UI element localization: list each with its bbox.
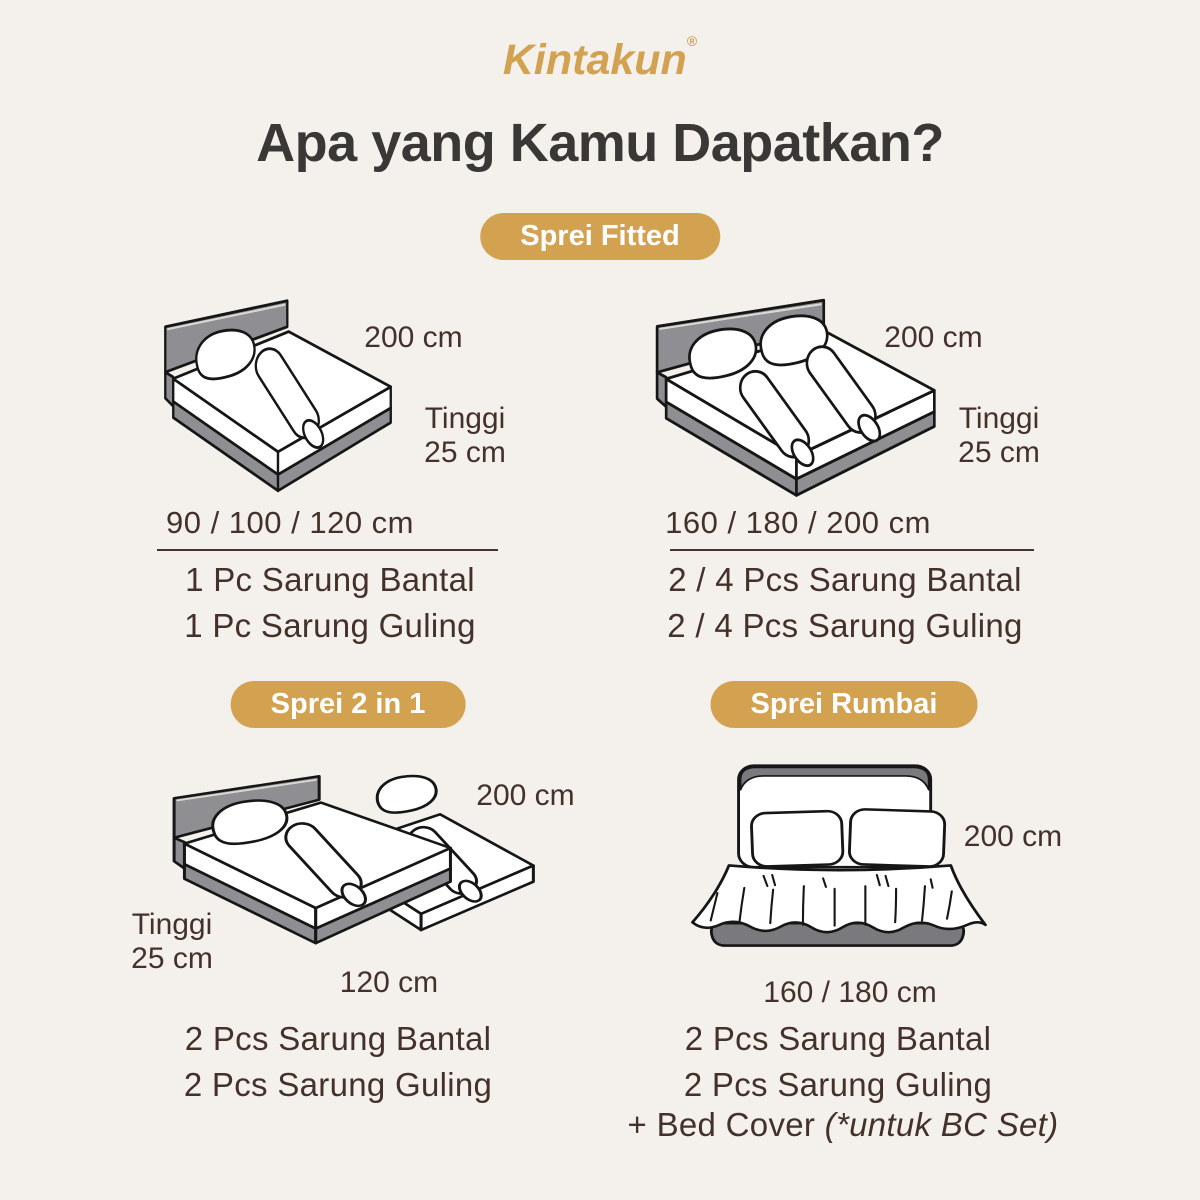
length-label: 200 cm (959, 820, 1067, 854)
height-label-value: 25 cm (424, 436, 506, 469)
bed-cover-prefix: + Bed Cover (628, 1106, 825, 1143)
length-label: 200 cm (473, 779, 578, 813)
height-label-word: Tinggi (425, 402, 506, 435)
included-item: 2 Pcs Sarung Guling (128, 1066, 548, 1104)
bed-cover-italic-note: (*untuk BC Set) (825, 1106, 1059, 1143)
included-item: 2 / 4 Pcs Sarung Bantal (635, 561, 1055, 599)
height-label-word: Tinggi (959, 402, 1040, 435)
included-item: 2 Pcs Sarung Bantal (128, 1020, 548, 1058)
kintakun-infographic: Kintakun® Apa yang Kamu Dapatkan? Sprei … (0, 0, 1200, 1200)
length-label: 200 cm (361, 321, 466, 355)
height-label-word: Tinggi (132, 908, 213, 941)
included-item: 1 Pc Sarung Bantal (120, 561, 540, 599)
pillow-left (751, 811, 843, 867)
height-label: Tinggi 25 cm (419, 402, 511, 470)
bed-skirt (692, 865, 985, 932)
badge-sprei-2in1: Sprei 2 in 1 (231, 681, 466, 728)
included-item: 2 Pcs Sarung Bantal (628, 1020, 1048, 1058)
divider (670, 549, 1034, 551)
badge-sprei-fitted: Sprei Fitted (480, 213, 720, 260)
bed-cover-note: + Bed Cover (*untuk BC Set) (613, 1106, 1073, 1144)
divider (157, 549, 498, 551)
length-label: 200 cm (881, 321, 986, 355)
height-label: Tinggi 25 cm (126, 908, 218, 976)
brand-logo-text: Kintakun (503, 36, 687, 84)
height-label-value: 25 cm (131, 942, 213, 975)
widths-label: 90 / 100 / 120 cm (80, 505, 500, 541)
page-title: Apa yang Kamu Dapatkan? (0, 112, 1200, 174)
badge-sprei-rumbai: Sprei Rumbai (711, 681, 978, 728)
height-label-value: 25 cm (958, 436, 1040, 469)
included-item: 2 / 4 Pcs Sarung Guling (635, 607, 1055, 645)
pillow (377, 776, 436, 813)
widths-label: 160 / 180 / 200 cm (588, 505, 1008, 541)
included-item: 2 Pcs Sarung Guling (628, 1066, 1048, 1104)
height-label: Tinggi 25 cm (953, 402, 1045, 470)
width-label: 160 / 180 cm (760, 976, 940, 1010)
pillow-right (849, 809, 945, 867)
bed-rumbai-illustration (679, 757, 996, 955)
brand-logo: Kintakun® (0, 33, 1200, 85)
included-item: 1 Pc Sarung Guling (120, 607, 540, 645)
registered-mark: ® (687, 33, 697, 49)
width-label: 120 cm (334, 966, 444, 1000)
